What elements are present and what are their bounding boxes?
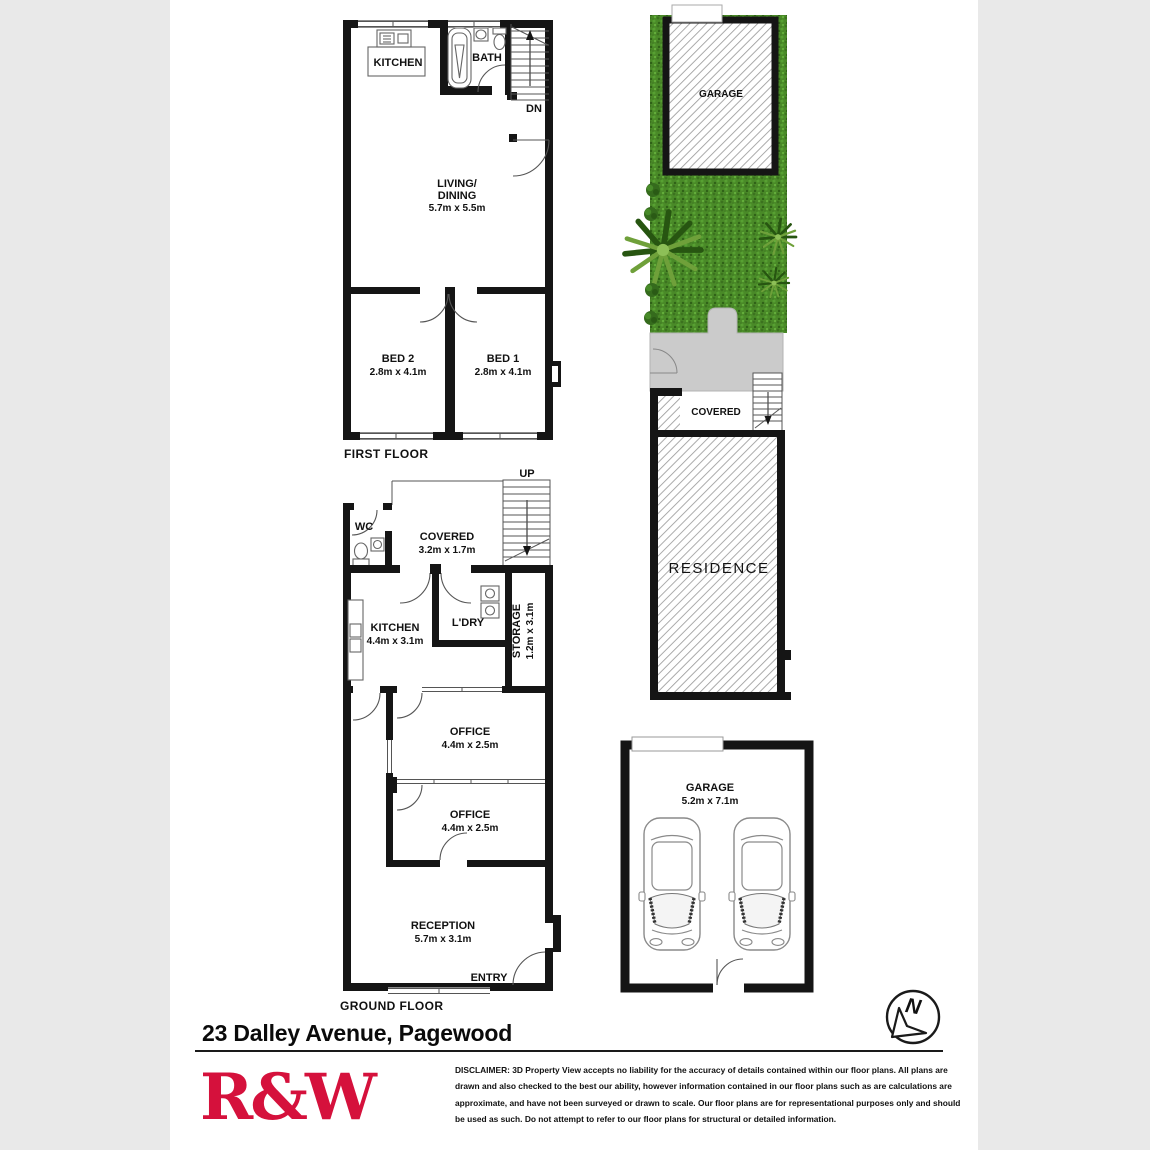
gf-office2-dims: 4.4m x 2.5m [442, 823, 499, 834]
site-covered-label: COVERED [691, 407, 740, 418]
bush [646, 183, 660, 197]
gf-ldry-label: L'DRY [452, 617, 485, 629]
property-address: 23 Dalley Avenue, Pagewood [202, 1020, 512, 1047]
gf-covered-dims: 3.2m x 1.7m [419, 545, 476, 556]
garage-plan: GARAGE 5.2m x 7.1m [625, 737, 809, 993]
ff-living-label-2: DINING [438, 190, 477, 202]
site-stairs [753, 373, 782, 433]
ff-bed1-dims: 2.8m x 4.1m [475, 367, 532, 378]
ground-floor-caption: GROUND FLOOR [340, 999, 443, 1013]
ff-living-label-1: LIVING/ [437, 178, 477, 190]
north-compass-icon: N [887, 991, 939, 1043]
gf-entry-label: ENTRY [471, 972, 509, 984]
bush [645, 283, 659, 297]
floorplan-canvas: KITCHEN BATH DN LIVING/ DINING 5.7m x 5.… [0, 0, 1150, 1150]
gf-storage-label: STORAGE [511, 604, 523, 658]
garage-plan-label: GARAGE [686, 782, 734, 794]
ff-living-dims: 5.7m x 5.5m [429, 203, 486, 214]
gf-office1-dims: 4.4m x 2.5m [442, 740, 499, 751]
ff-bed1-label: BED 1 [487, 353, 519, 365]
car-right [729, 818, 795, 950]
site-residence: COVERED RESIDENCE [650, 388, 791, 700]
gf-reception-label: RECEPTION [411, 920, 475, 932]
gf-reception-dims: 5.7m x 3.1m [415, 934, 472, 945]
ff-dn-label: DN [526, 103, 542, 115]
ff-bed2-label: BED 2 [382, 353, 414, 365]
first-floor-plan: KITCHEN BATH DN LIVING/ DINING 5.7m x 5.… [344, 21, 561, 462]
disclaimer-line: drawn and also checked to the best our a… [455, 1078, 947, 1094]
ff-kitchen-label: KITCHEN [374, 57, 423, 69]
gf-wc-label: WC [355, 521, 373, 533]
gf-office1-label: OFFICE [450, 726, 490, 738]
gf-kitchen-label: KITCHEN [371, 622, 420, 634]
ff-bed2-dims: 2.8m x 4.1m [370, 367, 427, 378]
floorplan-page: KITCHEN BATH DN LIVING/ DINING 5.7m x 5.… [0, 0, 1150, 1150]
garage-plan-dims: 5.2m x 7.1m [682, 796, 739, 807]
disclaimer-line: DISCLAIMER: 3D Property View accepts no … [455, 1062, 947, 1078]
gf-up-label: UP [519, 468, 534, 480]
ff-bath-label: BATH [472, 52, 502, 64]
gf-kitchen-bench [348, 600, 363, 680]
bush [644, 311, 658, 325]
gf-storage-dims: 1.2m x 3.1m [525, 603, 536, 660]
gf-office2-label: OFFICE [450, 809, 490, 821]
site-residence-label: RESIDENCE [668, 560, 769, 577]
footer-divider [195, 1050, 943, 1052]
disclaimer-line: be used as such. Do not attempt to refer… [455, 1111, 947, 1127]
site-plan: GARAGE [625, 5, 796, 700]
gf-wc: WC [343, 503, 392, 568]
first-floor-caption: FIRST FLOOR [344, 447, 428, 461]
bush [644, 207, 658, 221]
rw-logo: R&W [200, 1060, 374, 1135]
ground-floor-plan: UP COVERED 3.2m x 1.7m [340, 468, 561, 1013]
disclaimer-line: approximate, and have not been surveyed … [455, 1095, 947, 1111]
site-garage-label: GARAGE [699, 89, 743, 100]
car-left [639, 818, 705, 950]
gf-kitchen-dims: 4.4m x 3.1m [367, 636, 424, 647]
disclaimer-block: DISCLAIMER: 3D Property View accepts no … [455, 1062, 947, 1128]
gf-stairs-up [503, 480, 550, 566]
gf-covered-label: COVERED [420, 531, 474, 543]
